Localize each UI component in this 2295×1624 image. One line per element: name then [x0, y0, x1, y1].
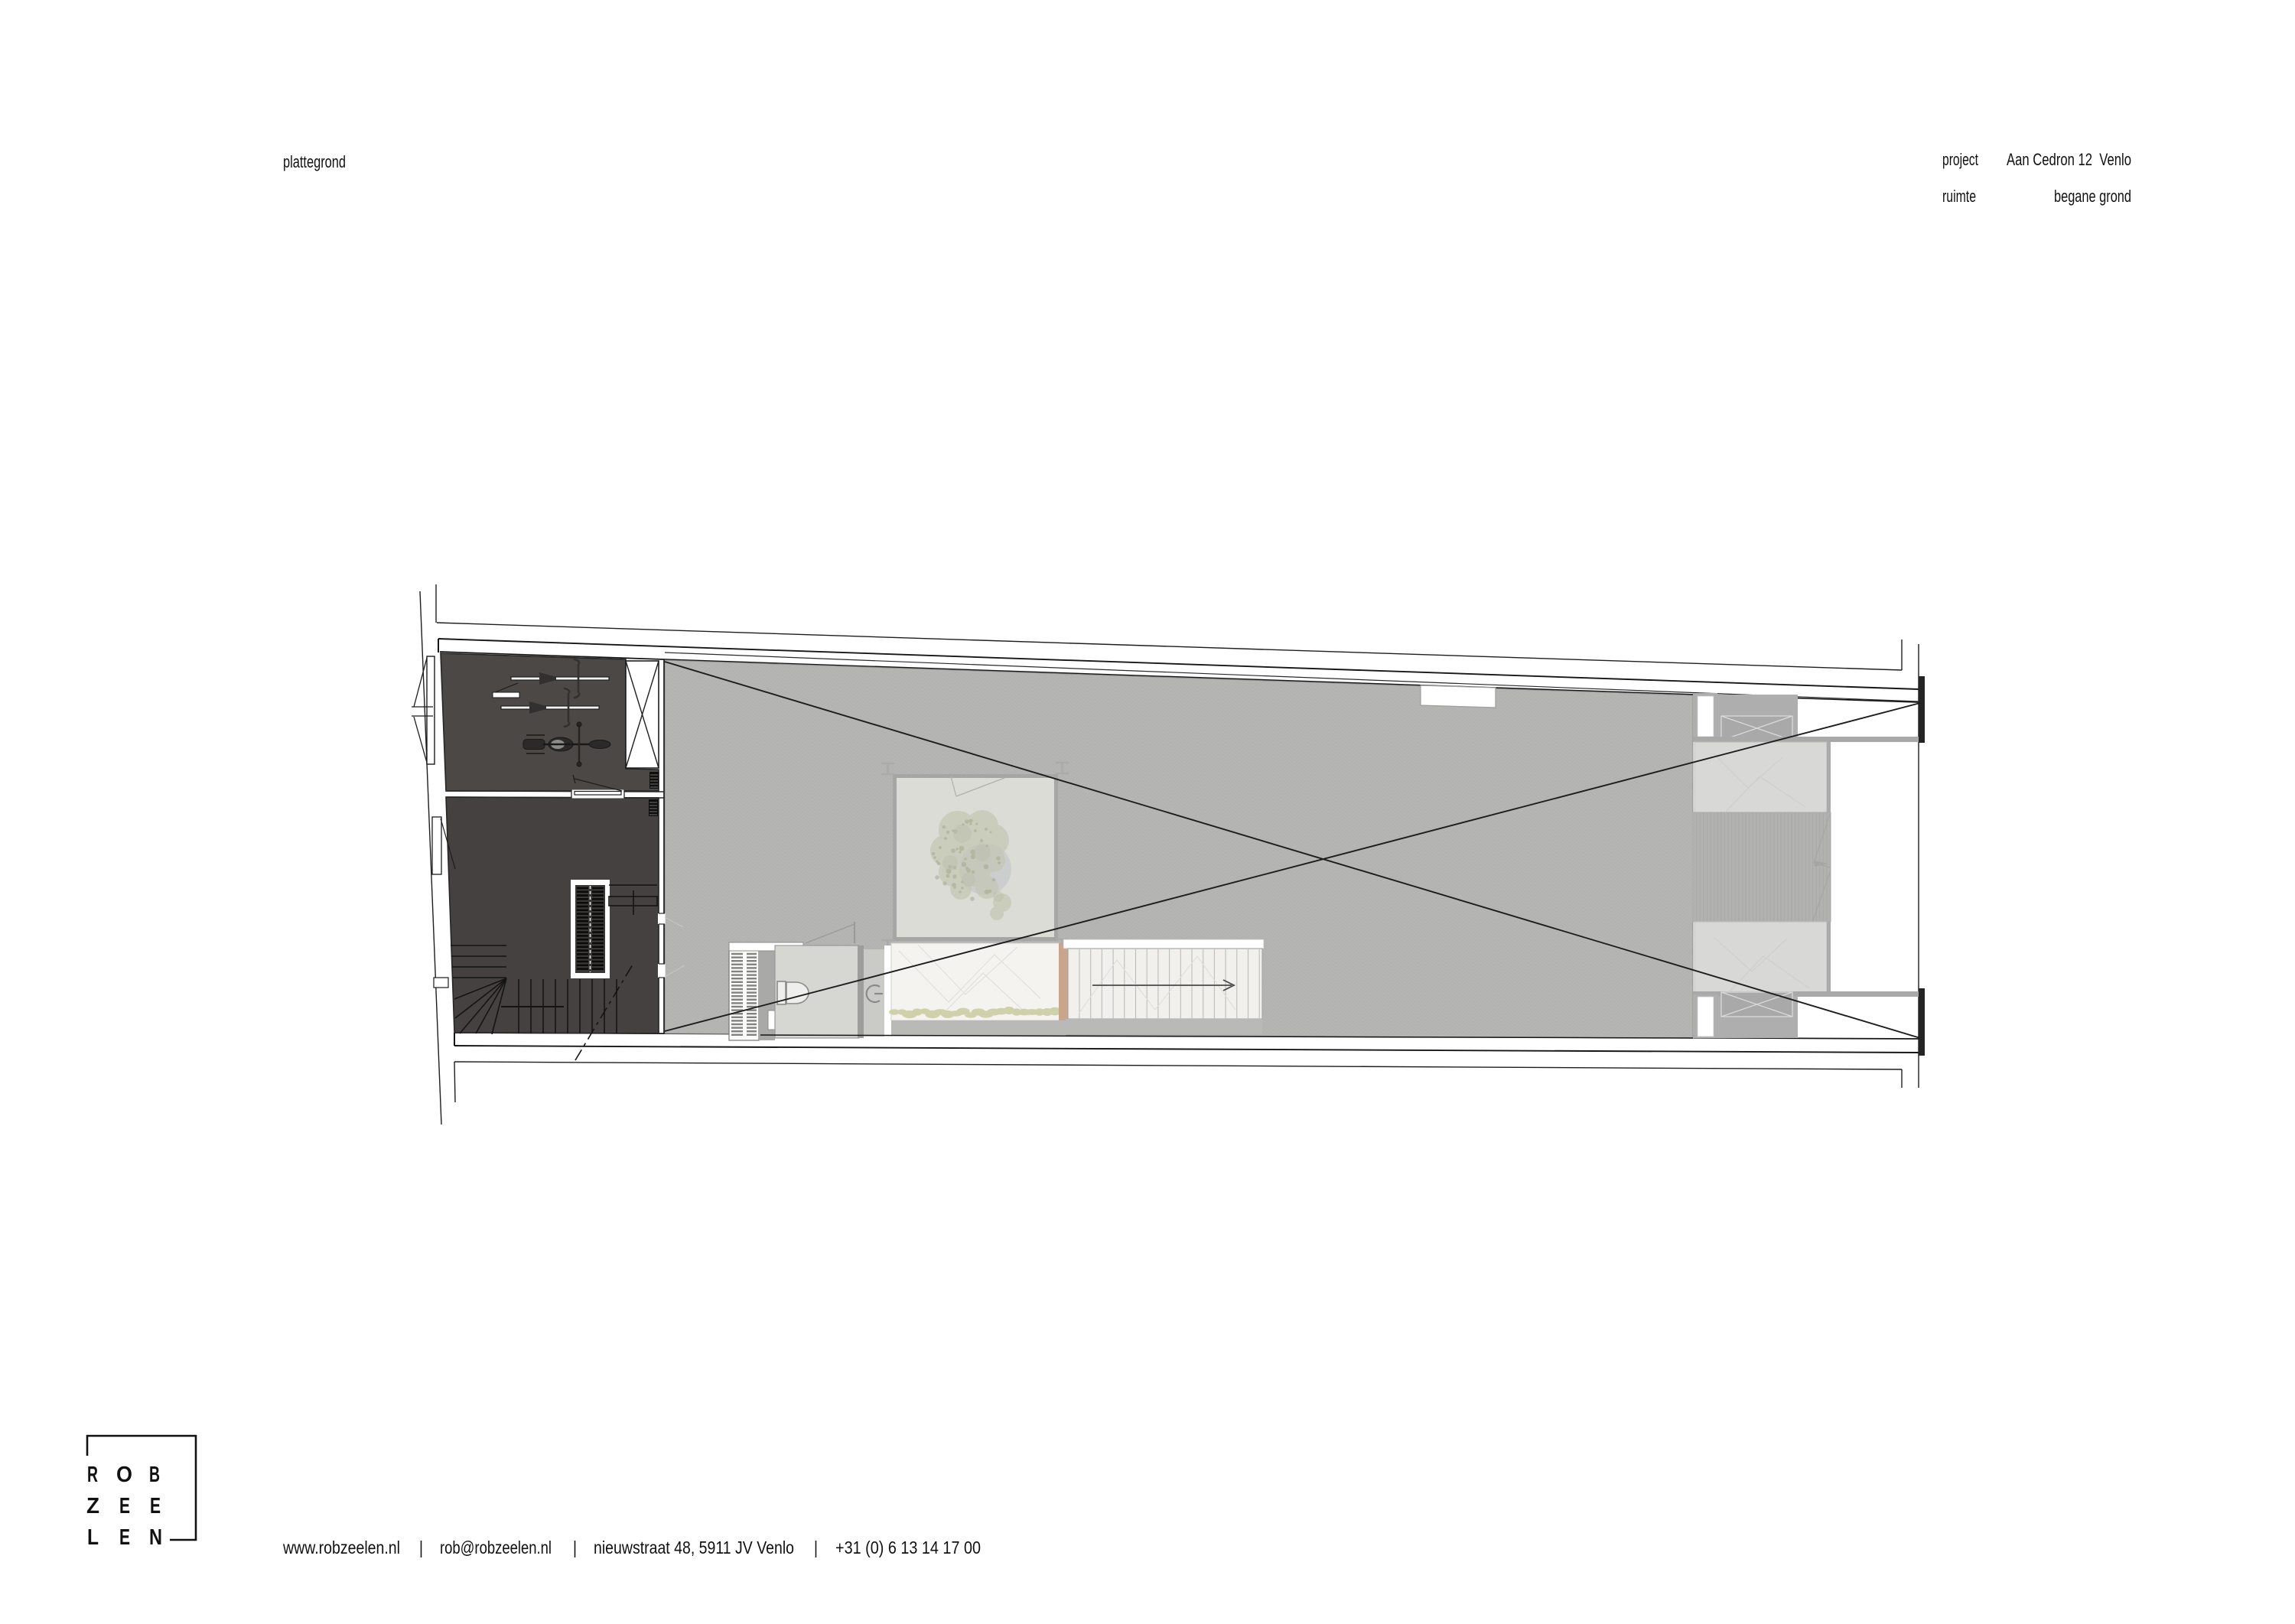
- svg-text:nieuwstraat 48, 5911 JV Venlo: nieuwstraat 48, 5911 JV Venlo: [594, 1538, 794, 1557]
- svg-text:Z: Z: [86, 1494, 99, 1518]
- svg-text:E: E: [150, 1494, 161, 1518]
- svg-text:rob@robzeelen.nl: rob@robzeelen.nl: [440, 1538, 552, 1557]
- svg-text:Aan Cedron 12 Venlo: Aan Cedron 12 Venlo: [2007, 150, 2131, 169]
- svg-text:R: R: [87, 1463, 98, 1487]
- svg-text:begane grond: begane grond: [2054, 187, 2131, 206]
- svg-text:ruimte: ruimte: [1942, 187, 1976, 206]
- svg-text:|: |: [419, 1538, 423, 1557]
- svg-text:E: E: [119, 1525, 130, 1550]
- svg-text:|: |: [814, 1538, 818, 1557]
- svg-text:O: O: [116, 1463, 132, 1487]
- svg-text:plattegrond: plattegrond: [283, 152, 346, 171]
- svg-text:E: E: [119, 1494, 130, 1518]
- svg-text:www.robzeelen.nl: www.robzeelen.nl: [282, 1538, 400, 1557]
- svg-text:+31 (0) 6 13 14 17 00: +31 (0) 6 13 14 17 00: [835, 1538, 981, 1557]
- svg-text:project: project: [1942, 150, 1978, 169]
- svg-text:N: N: [149, 1525, 162, 1550]
- svg-text:B: B: [149, 1463, 160, 1487]
- svg-text:|: |: [573, 1538, 577, 1557]
- svg-text:L: L: [87, 1525, 99, 1550]
